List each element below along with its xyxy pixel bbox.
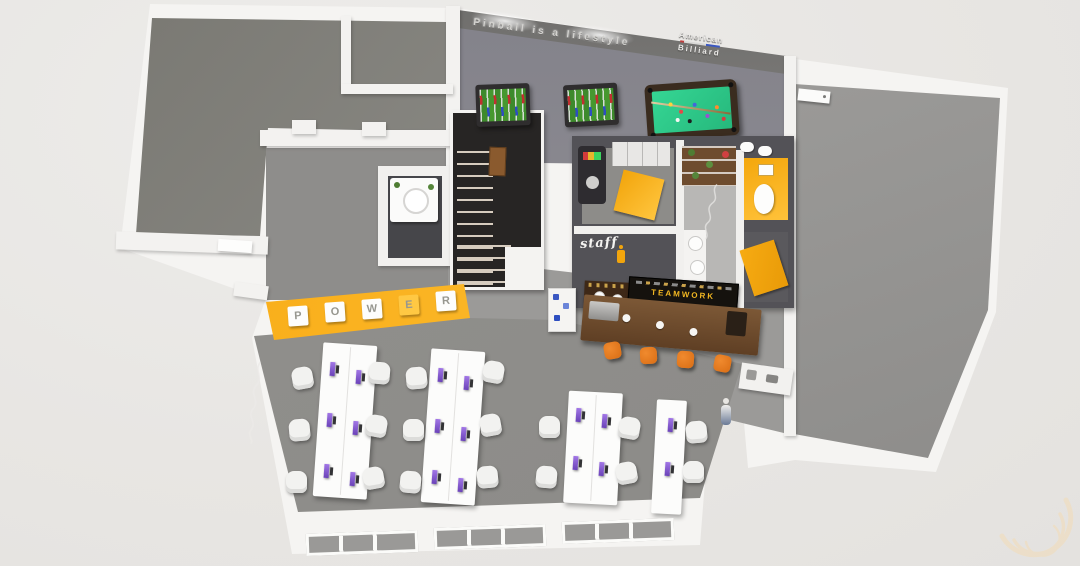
pool-table [644, 79, 740, 141]
office-chair [481, 359, 506, 384]
office-chair [368, 361, 391, 385]
foosball-players-blue [480, 106, 526, 117]
figure-head [619, 245, 623, 249]
person-figure [720, 398, 732, 428]
desktop-monitor [350, 472, 356, 486]
office-desk [563, 391, 623, 506]
desktop-monitor [599, 462, 605, 476]
office-chair [539, 416, 560, 438]
stall-door-yellow [739, 240, 788, 297]
power-letter-tile: W [361, 298, 382, 319]
wall-small-room-h [341, 84, 453, 94]
office-chair [364, 413, 389, 438]
plant-pot [688, 149, 695, 156]
toilet-stall-closed [744, 232, 788, 302]
office-chair [683, 461, 704, 483]
power-letter-tile: R [435, 290, 456, 311]
office-chair [535, 465, 558, 489]
bottle-row [589, 283, 629, 289]
pool-ball [679, 110, 683, 114]
plant-pot [722, 151, 729, 158]
office-chair [288, 418, 311, 442]
desktop-monitor [432, 470, 438, 484]
wall-notched [260, 130, 452, 146]
pool-ball [693, 103, 697, 107]
power-letter-tile: E [398, 294, 419, 315]
vending-buttons [583, 152, 601, 160]
rack-item [553, 294, 559, 300]
office-chair [685, 420, 708, 444]
office-desk [651, 399, 687, 514]
toilet-stall-yellow [744, 158, 788, 220]
staff-wall-label: staff [580, 235, 619, 252]
plant-pot [706, 161, 713, 168]
window-bay [562, 518, 675, 544]
vanity-sink-unit [390, 178, 438, 222]
pool-ball [688, 119, 692, 123]
rack-item [554, 315, 560, 321]
power-letter: O [330, 306, 339, 319]
round-sink-basin [403, 188, 429, 214]
bar-plate [622, 314, 631, 323]
desktop-monitor [464, 376, 470, 390]
desktop-monitor [576, 408, 582, 422]
round-sink-basin [690, 260, 705, 275]
desktop-monitor [458, 478, 464, 492]
staff-figure-pictogram [617, 250, 625, 263]
vending-speaker [586, 176, 599, 189]
pool-pocket [728, 82, 733, 87]
desktop-monitor [435, 419, 441, 433]
window-bay [434, 524, 547, 550]
door-handle [823, 95, 826, 98]
stair-door [488, 147, 506, 177]
door-leaf-large-room [218, 239, 253, 253]
bar-stool [603, 341, 623, 361]
toilet [754, 184, 774, 214]
desktop-monitor [665, 462, 671, 476]
coffee-grinder [725, 311, 747, 337]
counter-appliance [766, 374, 779, 384]
desktop-monitor [668, 418, 674, 432]
power-letter: E [405, 299, 413, 311]
office-desk [421, 348, 486, 505]
wall-partition [574, 226, 678, 234]
office-chair [399, 470, 422, 494]
office-chair [290, 365, 315, 390]
desktop-monitor [356, 370, 362, 384]
pool-ball [715, 105, 719, 109]
wall-small-room-v [341, 16, 351, 90]
espresso-machine [588, 301, 619, 322]
bar-plate [689, 328, 698, 337]
bar-stool [713, 354, 733, 374]
office-chair [478, 412, 503, 437]
floor-plan-scene: Pinball is a lifestyle American Billiard [0, 0, 1080, 566]
locker-panels [612, 142, 670, 166]
pool-pocket [731, 127, 736, 132]
power-letter-tile: O [324, 301, 345, 322]
stair-flight-bottom [457, 245, 511, 287]
bar-plate [656, 321, 665, 330]
desktop-monitor [353, 421, 359, 435]
desktop-monitor [330, 362, 336, 376]
office-chair [286, 471, 307, 493]
pool-felt [652, 86, 733, 133]
bar-stool [676, 350, 694, 368]
pool-ball [722, 117, 726, 121]
desktop-monitor [461, 427, 467, 441]
wall-notch-column [362, 122, 386, 136]
plant-pot [692, 172, 699, 179]
window-bay [306, 530, 419, 556]
wall-frame-art [758, 164, 774, 176]
office-chair [361, 465, 386, 490]
foosball-table [475, 83, 530, 127]
office-chair [614, 460, 639, 485]
wall-sink [758, 146, 772, 156]
rack-item [563, 303, 569, 309]
power-letter: R [442, 295, 451, 308]
crescent-watermark-icon [988, 486, 1080, 566]
foosball-table [563, 83, 619, 128]
stair-landing-wall [505, 247, 541, 287]
foosball-pitch [479, 88, 526, 122]
office-chair [405, 366, 428, 390]
vending-machine [578, 146, 606, 204]
plant-pot [394, 182, 400, 188]
desktop-monitor [602, 414, 608, 428]
power-letter: W [366, 303, 377, 316]
foosball-players-red [480, 95, 526, 106]
desktop-monitor [438, 368, 444, 382]
staircase-room [450, 110, 544, 290]
bar-stool [640, 347, 658, 365]
plant-pot [428, 184, 434, 190]
counter-appliance [746, 369, 757, 380]
display-rack [548, 288, 576, 332]
person-body [721, 405, 731, 425]
office-chair [617, 415, 642, 440]
desktop-monitor [573, 456, 579, 470]
desktop-monitor [327, 413, 333, 427]
foosball-pitch [567, 88, 615, 122]
power-letter: P [294, 310, 302, 322]
office-chair [403, 419, 424, 441]
wall-sink [740, 142, 754, 152]
office-chair [476, 465, 499, 489]
wall-notch-column [292, 120, 316, 134]
power-letter-tile: P [287, 305, 308, 326]
desktop-monitor [324, 464, 330, 478]
desk-seam [590, 395, 597, 501]
person-head [723, 398, 729, 404]
